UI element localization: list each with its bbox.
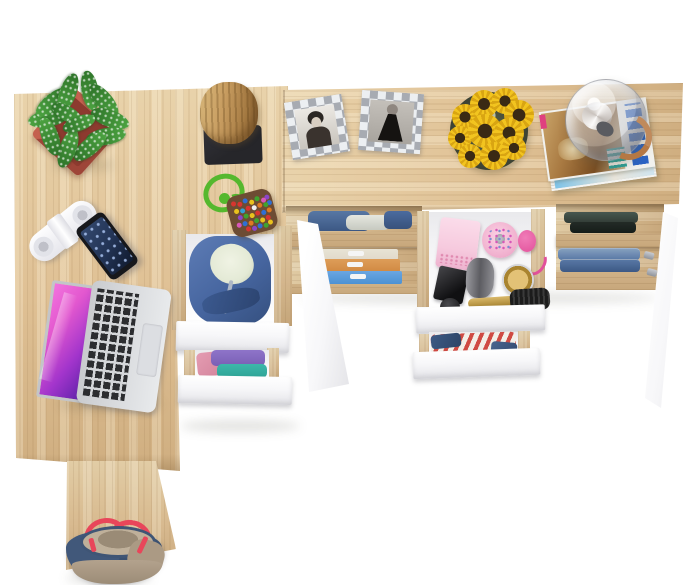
laptop-trackpad <box>136 323 163 377</box>
shelf-board <box>556 234 664 247</box>
bag-bottom <box>72 560 162 584</box>
bw-portrait-photo <box>294 104 340 150</box>
dark-folded-clothes <box>570 222 636 233</box>
photo-frame-right <box>358 90 424 154</box>
plant-foliage <box>26 84 126 180</box>
cork-stool <box>200 82 258 144</box>
glass-globe-lamp <box>565 79 647 161</box>
beaded-keychain <box>198 170 282 240</box>
drawer-rail-left <box>417 211 429 307</box>
laptop-body <box>76 280 172 414</box>
figure-black-dress <box>378 113 405 142</box>
laptop <box>36 274 176 414</box>
file-box-label <box>348 251 364 256</box>
vanity-drawer-front <box>416 304 546 333</box>
drawer-hoodie-open <box>186 234 274 326</box>
sunflower-bouquet <box>446 86 534 174</box>
cubby-clothes <box>556 204 664 290</box>
pedestal-drawer-front-bottom <box>178 375 292 405</box>
product-photo-scene <box>0 0 700 585</box>
pouch-beads <box>230 201 236 207</box>
laptop-keyboard <box>83 288 140 401</box>
striped-drawer-front <box>413 348 541 379</box>
file-box-label <box>350 274 366 279</box>
shadow-under-pedestal <box>180 420 300 432</box>
trinket-dots <box>486 227 514 253</box>
tote-bag <box>62 518 166 585</box>
pink-trinket-dish <box>482 222 518 258</box>
file-box-label <box>347 262 363 267</box>
drawer-rail-right <box>272 226 292 326</box>
folded-blue-cloth <box>384 211 412 229</box>
folded-jeans <box>560 259 640 272</box>
socket <box>30 233 58 261</box>
bw-figure-photo <box>368 100 415 145</box>
figure-head <box>387 104 399 116</box>
photo-frame-left <box>284 94 350 160</box>
portrait-shoulders <box>305 125 332 149</box>
